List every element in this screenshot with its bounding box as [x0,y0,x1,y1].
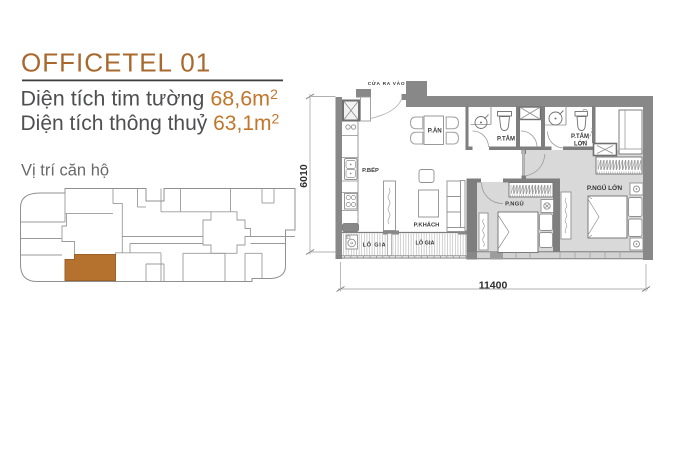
svg-text:LỚN: LỚN [574,140,587,148]
svg-text:11400: 11400 [479,280,508,292]
svg-text:LÔ GIA: LÔ GIA [363,241,387,249]
svg-text:CỬA RA VÀO: CỬA RA VÀO [368,80,406,87]
svg-text:Diện tích tim tường 68,6m2: Diện tích tim tường 68,6m2 [21,86,279,111]
svg-text:P.TẮM: P.TẮM [497,135,515,143]
svg-text:Vị trí căn hộ: Vị trí căn hộ [21,162,109,180]
svg-text:P.NGỦ: P.NGỦ [505,201,524,208]
svg-text:6010: 6010 [298,164,310,188]
svg-text:P.KHÁCH: P.KHÁCH [414,222,440,229]
svg-text:P.NGỦ LỚN: P.NGỦ LỚN [587,183,623,192]
svg-text:Diện tích thông thuỷ 63,1m2: Diện tích thông thuỷ 63,1m2 [21,111,280,136]
svg-text:OFFICETEL 01: OFFICETEL 01 [21,48,211,78]
svg-text:P.BẾP: P.BẾP [362,167,379,174]
svg-text:P.TẮM: P.TẮM [571,132,589,140]
svg-text:P.ĂN: P.ĂN [428,128,443,135]
svg-text:LÔ GIA: LÔ GIA [416,239,435,247]
